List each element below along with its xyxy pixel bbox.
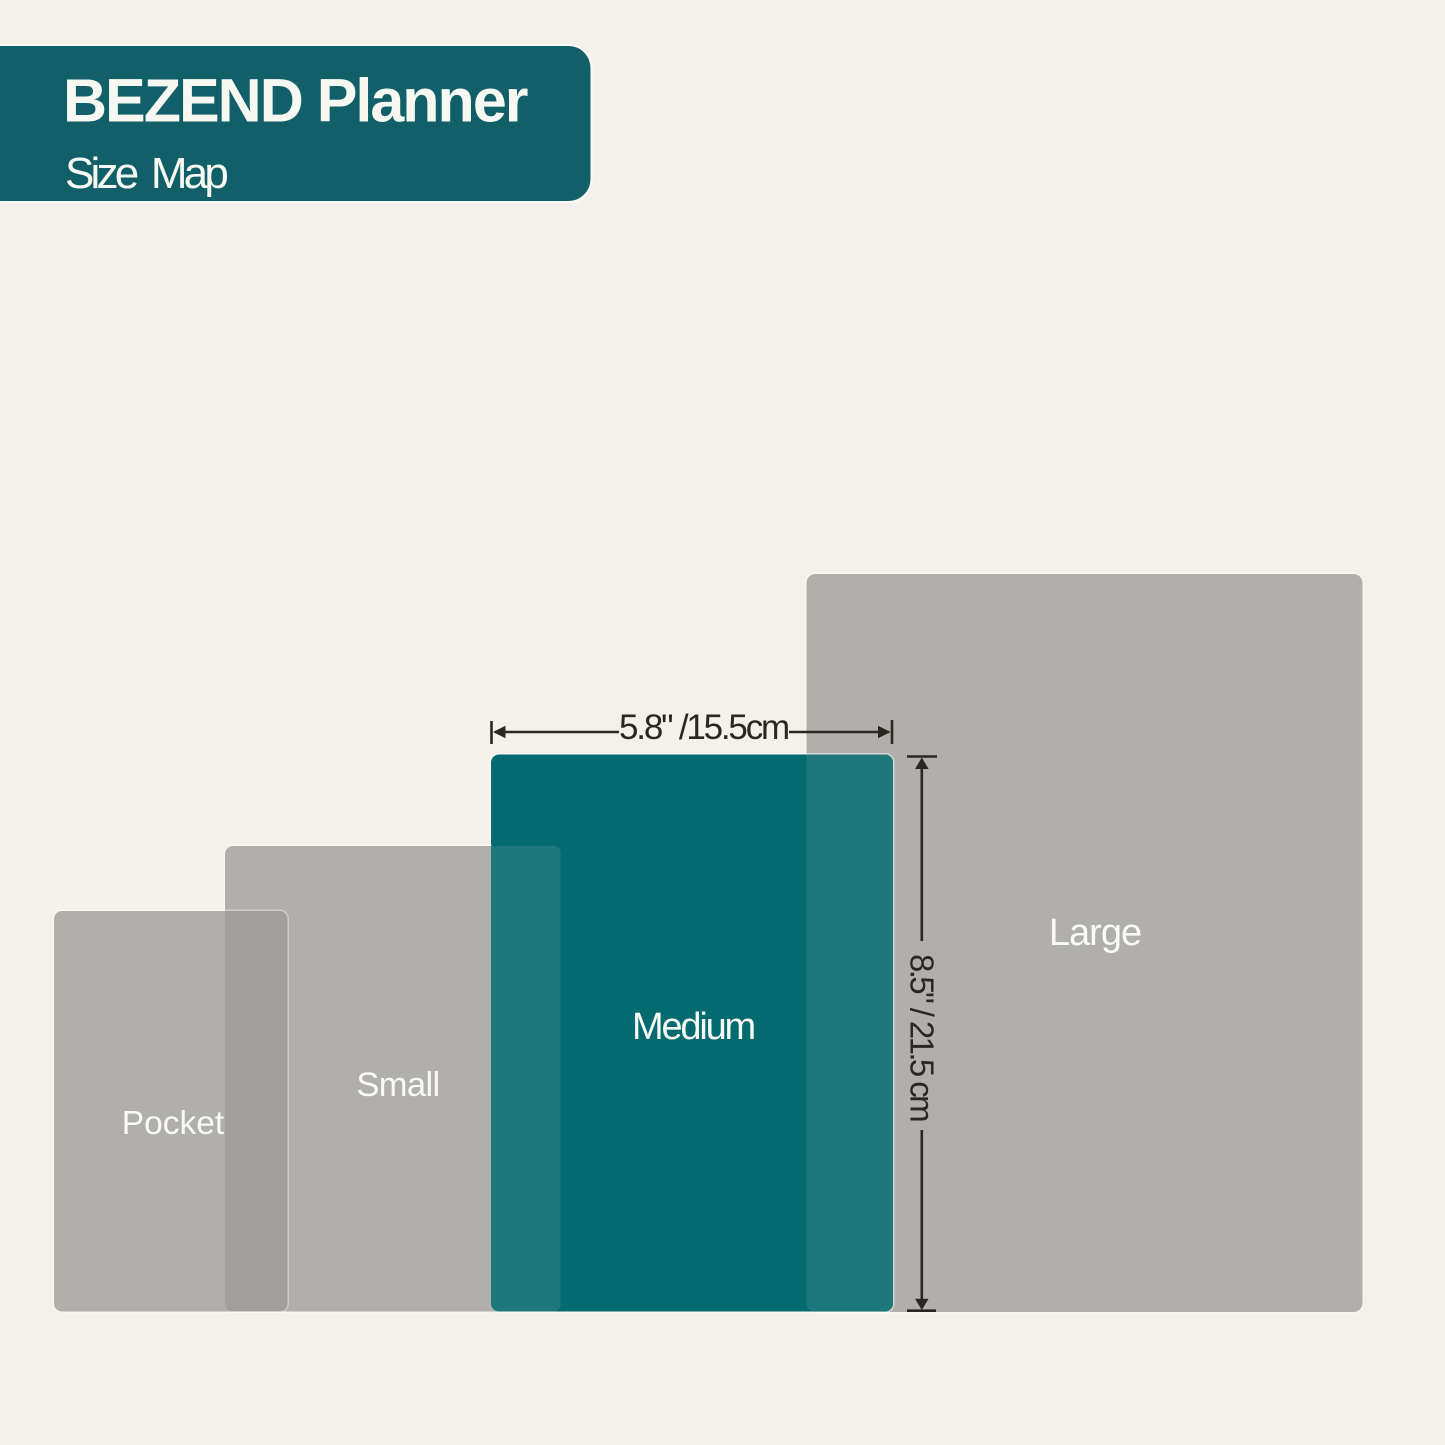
svg-text:BEZEND Planner: BEZEND Planner [63,67,528,135]
svg-text:Medium: Medium [632,1006,754,1048]
svg-text:Large: Large [1049,912,1141,954]
svg-text:8.5" / 21.5 cm: 8.5" / 21.5 cm [903,954,940,1121]
svg-text:Small: Small [356,1066,439,1104]
svg-text:Pocket: Pocket [122,1105,225,1142]
svg-text:Size Map: Size Map [65,149,227,198]
svg-text:5.8" /15.5cm: 5.8" /15.5cm [619,708,788,747]
